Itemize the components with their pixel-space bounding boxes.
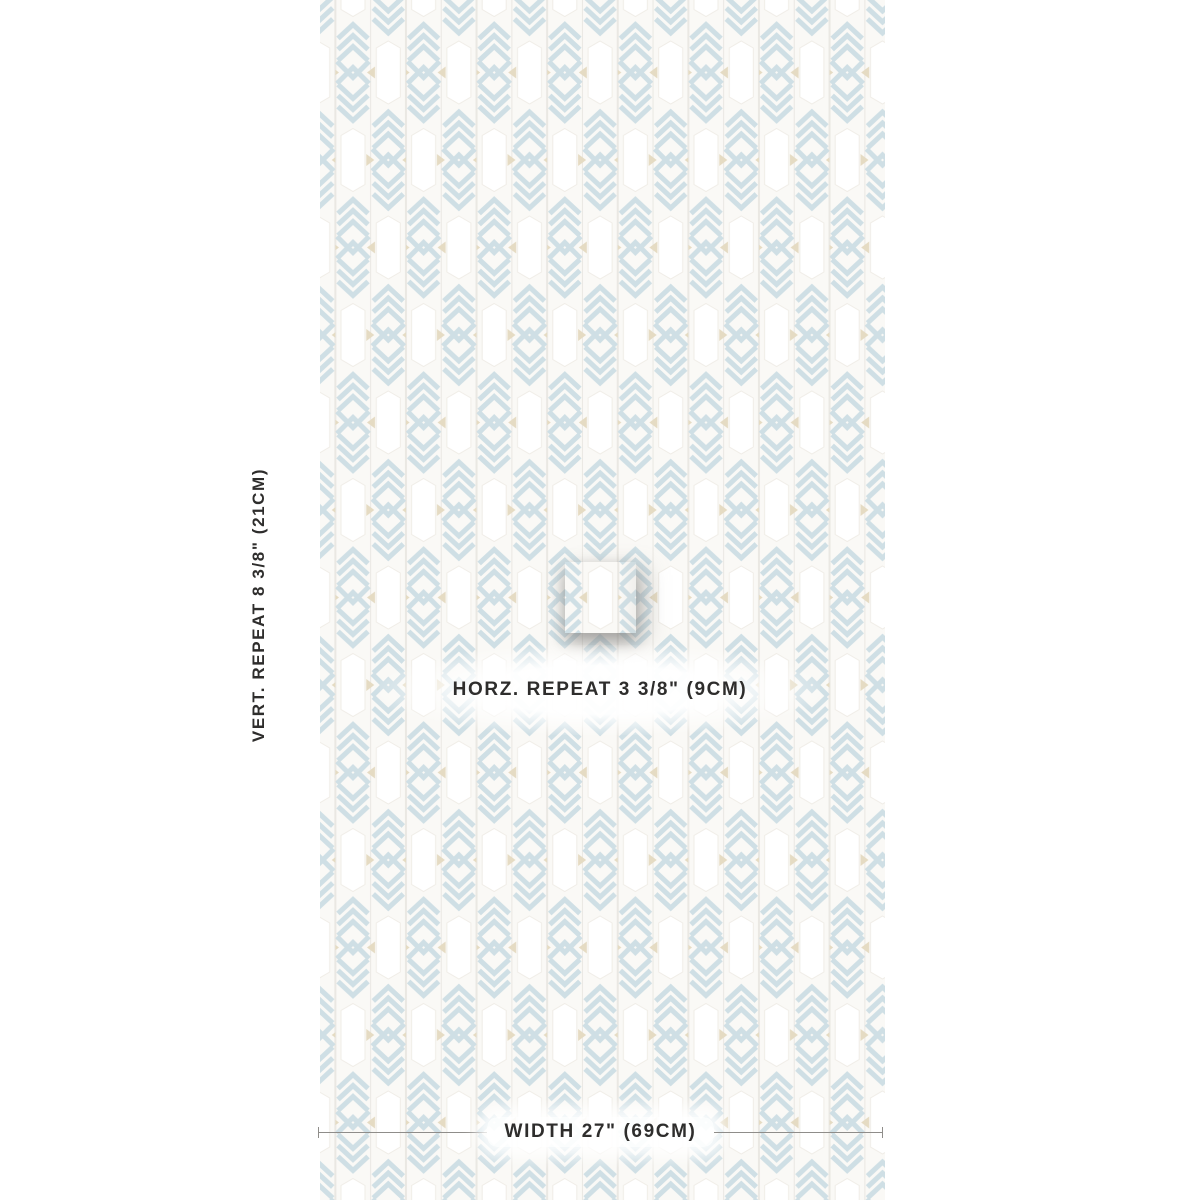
width-value: 27" (69CM) bbox=[582, 1121, 697, 1142]
width-dimension: WIDTH 27" (69CM) bbox=[318, 1122, 883, 1142]
vertical-repeat-text: VERT. REPEAT bbox=[249, 596, 268, 742]
horizontal-repeat-label-area: HORZ. REPEAT 3 3/8" (9CM) bbox=[380, 645, 820, 735]
horizontal-repeat-value: 3 3/8" (9CM) bbox=[619, 679, 748, 700]
width-text: WIDTH bbox=[505, 1121, 582, 1142]
horizontal-repeat-text: HORZ. REPEAT bbox=[453, 679, 619, 700]
dimension-line-right bbox=[714, 1132, 882, 1133]
horizontal-repeat-label: HORZ. REPEAT 3 3/8" (9CM) bbox=[453, 679, 748, 701]
dimension-line-left bbox=[319, 1132, 487, 1133]
dimension-tick-right bbox=[882, 1127, 883, 1138]
vertical-repeat-label: VERT. REPEAT 8 3/8" (21CM) bbox=[249, 465, 269, 745]
repeat-unit-swatch bbox=[565, 562, 636, 633]
product-measurement-image: VERT. REPEAT 8 3/8" (21CM) HORZ. REPEAT … bbox=[0, 0, 1200, 1200]
vertical-repeat-value: 8 3/8" (21CM) bbox=[249, 468, 268, 596]
width-label: WIDTH 27" (69CM) bbox=[487, 1117, 715, 1147]
